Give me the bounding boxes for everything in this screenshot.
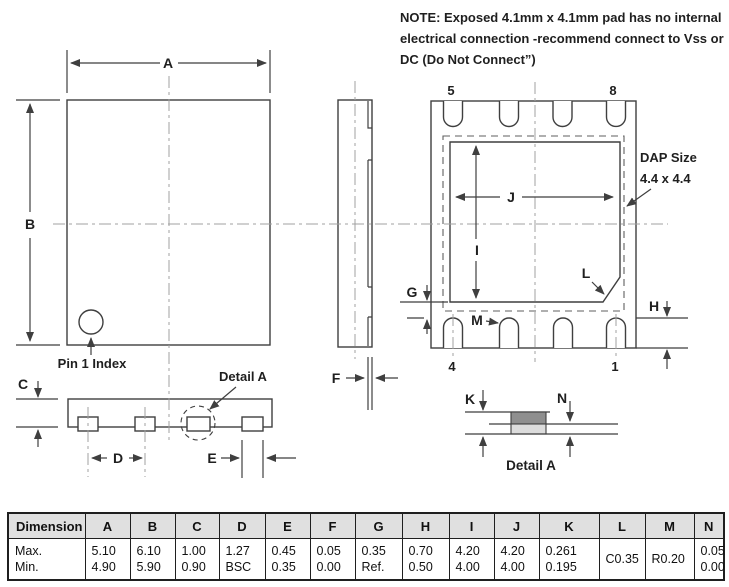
header-dimension: Dimension bbox=[8, 513, 85, 539]
dim-i-label: I bbox=[475, 242, 479, 258]
dim-j-label: J bbox=[507, 189, 515, 205]
pad-7 bbox=[553, 101, 572, 127]
header-j: J bbox=[494, 513, 539, 539]
header-l: L bbox=[599, 513, 645, 539]
cell-m: R0.20 bbox=[645, 539, 694, 581]
dim-k-label: K bbox=[465, 391, 475, 407]
dimension-c: C bbox=[16, 376, 58, 447]
dimension-table: Dimension A B C D E F G H I J K L M N Ma… bbox=[7, 512, 725, 581]
package-drawing: A B Pin 1 Index C Detail A D E bbox=[0, 0, 729, 505]
cell-h: 0.700.50 bbox=[402, 539, 449, 581]
pin5-number: 5 bbox=[447, 83, 454, 98]
dim-a-label: A bbox=[163, 55, 173, 71]
dap-size-value: 4.4 x 4.4 bbox=[640, 171, 691, 186]
header-b: B bbox=[130, 513, 175, 539]
dim-d-label: D bbox=[113, 450, 123, 466]
header-d: D bbox=[219, 513, 265, 539]
dim-c-label: C bbox=[18, 376, 28, 392]
cell-k: 0.2610.195 bbox=[539, 539, 599, 581]
dim-l-label: L bbox=[582, 265, 591, 281]
cell-d: 1.27BSC bbox=[219, 539, 265, 581]
detail-pad-lower bbox=[511, 424, 546, 434]
pin4-number: 4 bbox=[448, 359, 456, 374]
header-a: A bbox=[85, 513, 130, 539]
detail-a-callout-label: Detail A bbox=[219, 369, 268, 384]
cell-c: 1.000.90 bbox=[175, 539, 219, 581]
header-n: N bbox=[694, 513, 724, 539]
cell-f: 0.050.00 bbox=[310, 539, 355, 581]
cell-i: 4.204.00 bbox=[449, 539, 494, 581]
dim-m-label: M bbox=[471, 312, 483, 328]
table-data-row: Max.Min. 5.104.90 6.105.90 1.000.90 1.27… bbox=[8, 539, 724, 581]
pad-6 bbox=[500, 101, 519, 127]
detail-a-caption: Detail A bbox=[506, 458, 556, 473]
dimension-f: F bbox=[332, 357, 398, 410]
cell-l: C0.35 bbox=[599, 539, 645, 581]
pin1-number: 1 bbox=[611, 359, 618, 374]
header-e: E bbox=[265, 513, 310, 539]
dap-size-label: DAP Size bbox=[640, 150, 697, 165]
pin8-number: 8 bbox=[609, 83, 616, 98]
header-i: I bbox=[449, 513, 494, 539]
pad-2 bbox=[554, 318, 573, 348]
dimension-e: E bbox=[207, 440, 296, 478]
header-k: K bbox=[539, 513, 599, 539]
dim-n-label: N bbox=[557, 390, 567, 406]
header-f: F bbox=[310, 513, 355, 539]
header-h: H bbox=[402, 513, 449, 539]
header-g: G bbox=[355, 513, 402, 539]
side-pad-3 bbox=[187, 417, 210, 431]
pad-8 bbox=[607, 101, 626, 126]
header-m: M bbox=[645, 513, 694, 539]
dim-b-label: B bbox=[25, 216, 35, 232]
detail-a-view: K N Detail A bbox=[465, 390, 618, 473]
detail-pad-upper bbox=[511, 412, 546, 424]
side-view bbox=[68, 399, 272, 440]
dim-e-label: E bbox=[207, 450, 216, 466]
cell-g: 0.35Ref. bbox=[355, 539, 402, 581]
cell-row-labels: Max.Min. bbox=[8, 539, 85, 581]
pin1-index-label: Pin 1 Index bbox=[58, 356, 127, 371]
dimension-b: B bbox=[16, 100, 60, 345]
side-pad-4 bbox=[242, 417, 263, 431]
dimension-h: H bbox=[636, 298, 688, 369]
pad-5 bbox=[444, 101, 463, 127]
cell-n: 0.050.00 bbox=[694, 539, 724, 581]
header-c: C bbox=[175, 513, 219, 539]
cell-b: 6.105.90 bbox=[130, 539, 175, 581]
cell-a: 5.104.90 bbox=[85, 539, 130, 581]
dim-h-label: H bbox=[649, 298, 659, 314]
table-header-row: Dimension A B C D E F G H I J K L M N bbox=[8, 513, 724, 539]
dim-f-label: F bbox=[332, 370, 341, 386]
cell-e: 0.450.35 bbox=[265, 539, 310, 581]
cell-j: 4.204.00 bbox=[494, 539, 539, 581]
mechanical-drawing-page: { "note": { "line1": "NOTE: Exposed 4.1m… bbox=[0, 0, 729, 587]
dap-size-annotation: DAP Size 4.4 x 4.4 bbox=[627, 150, 697, 206]
pad-3 bbox=[500, 318, 519, 348]
dim-g-label: G bbox=[407, 284, 418, 300]
dimension-d: D bbox=[92, 450, 142, 466]
